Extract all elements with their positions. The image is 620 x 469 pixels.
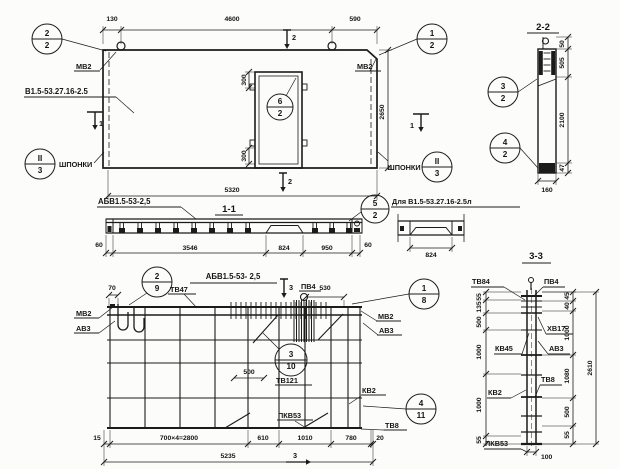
plan-underlines	[74, 291, 407, 430]
dim-160: 160	[541, 187, 553, 194]
section-1-1-title: 1-1	[222, 204, 236, 215]
dim-4600: 4600	[224, 16, 239, 23]
callout-2-9-num: 2	[155, 272, 160, 281]
dimL-1000b: 1000	[476, 397, 483, 412]
dim-130: 130	[106, 16, 118, 23]
dim-70: 70	[108, 285, 116, 292]
label-hv17: ХВ17	[547, 324, 565, 333]
label-mv2-plan-left: МВ2	[76, 309, 91, 318]
dimR-1080: 1080	[564, 368, 571, 383]
dim-60R: 60	[364, 242, 372, 249]
dimR-45: 45	[564, 292, 571, 300]
mark-2-bottom: 2	[288, 177, 292, 186]
section-1-arrow-right	[418, 127, 423, 132]
drawing-sheet: 130 4600 590 2650 5320 300 300 МВ2 В1.5-…	[0, 0, 620, 469]
callout-2-9-den: 9	[155, 284, 160, 293]
dim-2610: 2610	[587, 360, 594, 375]
detail-l	[391, 207, 520, 242]
dim-300-top: 300	[241, 74, 248, 86]
label-kv2-plan: КВ2	[362, 386, 376, 395]
callout-keyR-num: II	[435, 157, 440, 166]
callout-2-2-den: 2	[45, 41, 50, 50]
callout-1-2-num: 1	[430, 29, 435, 38]
dim-60L: 60	[95, 242, 103, 249]
section-1-mark-right	[413, 114, 429, 127]
dim-950: 950	[321, 245, 333, 252]
dim-50: 50	[559, 40, 566, 48]
dim-1010: 1010	[297, 435, 312, 442]
label-av3-plan-right: АВ3	[379, 326, 394, 335]
dimL-55a: 55	[476, 293, 483, 301]
mark-1-right: 1	[410, 121, 414, 130]
section-2-arrow-top	[284, 44, 289, 49]
dimR-40: 40	[564, 302, 571, 310]
dim-610: 610	[257, 435, 269, 442]
callout-3-10	[275, 344, 307, 376]
slab-body	[106, 219, 362, 233]
label-kv45: КВ45	[495, 344, 513, 353]
label-tv8-plan: ТВ8	[385, 421, 399, 430]
hook-2	[134, 306, 144, 332]
label-av3-plan-left: АВ3	[76, 324, 91, 333]
callout-1-8-den: 8	[422, 296, 427, 305]
plan-title: АБВ1.5-53- 2,5	[206, 272, 261, 281]
dim-47: 47	[559, 164, 566, 172]
callout-keyL-num: II	[38, 154, 43, 163]
dimR-500: 500	[564, 406, 571, 418]
dimL-1000a: 1000	[476, 344, 483, 359]
label-av3-3-3: АВ3	[549, 344, 564, 353]
dim-824-detail: 824	[425, 252, 437, 259]
label-keys-left: ШПОНКИ	[59, 160, 92, 169]
section-2-2-title: 2-2	[536, 22, 550, 33]
panel-working-drawing: 130 4600 590 2650 5320 300 300 МВ2 В1.5-…	[0, 0, 620, 469]
dim-2650: 2650	[379, 104, 386, 119]
label-pv4-plan: ПВ4	[301, 282, 317, 291]
callout-2-2-num: 2	[45, 29, 50, 38]
label-tv8-3-3: ТВ8	[541, 375, 555, 384]
callout-1-8-num: 1	[422, 284, 427, 293]
label-pkv53-3-3: ПКВ53	[485, 439, 508, 448]
dimL-55b: 55	[476, 436, 483, 444]
section-3-3-title: 3-3	[529, 251, 543, 262]
mark-3-bottom: 3	[293, 451, 297, 460]
dim-500: 500	[243, 369, 255, 376]
callout-opening-num: 6	[278, 97, 283, 106]
break-line	[538, 79, 556, 86]
section-2-mark-bottom	[279, 173, 287, 187]
callout-3-10-num: 3	[289, 350, 294, 359]
panel-outline	[103, 50, 377, 168]
dim-3546: 3546	[182, 245, 197, 252]
label-tv84: ТВ84	[472, 277, 491, 286]
callout-4-11-den: 11	[417, 411, 426, 420]
callout-4-2-num: 4	[503, 138, 508, 147]
detail-recess	[410, 228, 452, 236]
top-embed-right	[551, 51, 555, 75]
dimR-1000: 1000	[564, 325, 571, 340]
dim-590: 590	[349, 16, 361, 23]
mark-1-left: 1	[99, 119, 103, 128]
mark-3-top: 3	[289, 283, 293, 292]
underlines-1-1	[97, 207, 243, 215]
dim-2800: 700×4=2800	[160, 435, 198, 442]
label-mv2-plan-right: МВ2	[378, 312, 393, 321]
dim-5235: 5235	[220, 453, 235, 460]
dim-100: 100	[541, 454, 553, 461]
dim-824: 824	[278, 245, 290, 252]
mark-2-top: 2	[292, 33, 296, 42]
dimL-135: 135	[476, 301, 483, 313]
dim-5320: 5320	[224, 187, 239, 194]
section-3-mark-top	[280, 279, 288, 293]
callout-keyR-den: 3	[435, 169, 440, 178]
dim-300-bottom: 300	[241, 150, 248, 162]
callout-5-2-num: 5	[373, 199, 378, 208]
dimR-55: 55	[564, 431, 571, 439]
dim-780: 780	[345, 435, 357, 442]
dim-505: 505	[559, 57, 566, 69]
section-2-arrow-bottom	[280, 187, 285, 192]
callout-4-2-den: 2	[503, 150, 508, 159]
bottom-embed	[539, 163, 555, 173]
top-loop-3-3	[529, 278, 534, 283]
top-embed-left	[539, 51, 543, 75]
callout-3-2-num: 3	[501, 82, 506, 91]
callout-keyL-den: 3	[38, 166, 43, 175]
dim-20: 20	[376, 435, 384, 442]
label-panel-mark: В1.5-53.27.16-2.5	[25, 87, 89, 96]
label-tv47: ТВ47	[170, 285, 188, 294]
recess	[266, 226, 303, 234]
label-dlya: Для В1.5-53.27.16-2.5л	[392, 197, 472, 206]
section-1-arrow-left	[92, 125, 97, 130]
section-2-mark-top	[283, 30, 291, 44]
dim-2100: 2100	[559, 112, 566, 127]
callout-opening-den: 2	[278, 109, 283, 118]
dim-15: 15	[93, 435, 101, 442]
label-mv2-right: МВ2	[357, 62, 372, 71]
label-kv2-3-3: КВ2	[488, 388, 502, 397]
label-mv2-left: МВ2	[76, 62, 91, 71]
label-pv4-3-3: ПВ4	[544, 277, 560, 286]
callout-5-2-den: 2	[373, 211, 378, 220]
callout-4-11-num: 4	[419, 399, 424, 408]
dimL-500: 500	[476, 316, 483, 328]
label-pkv53-plan: ПКВ53	[278, 411, 301, 420]
label-keys-right: ШПОНКИ	[387, 163, 420, 172]
callout-3-2-den: 2	[501, 94, 506, 103]
callout-1-2-den: 2	[430, 41, 435, 50]
dim-530: 530	[319, 285, 331, 292]
